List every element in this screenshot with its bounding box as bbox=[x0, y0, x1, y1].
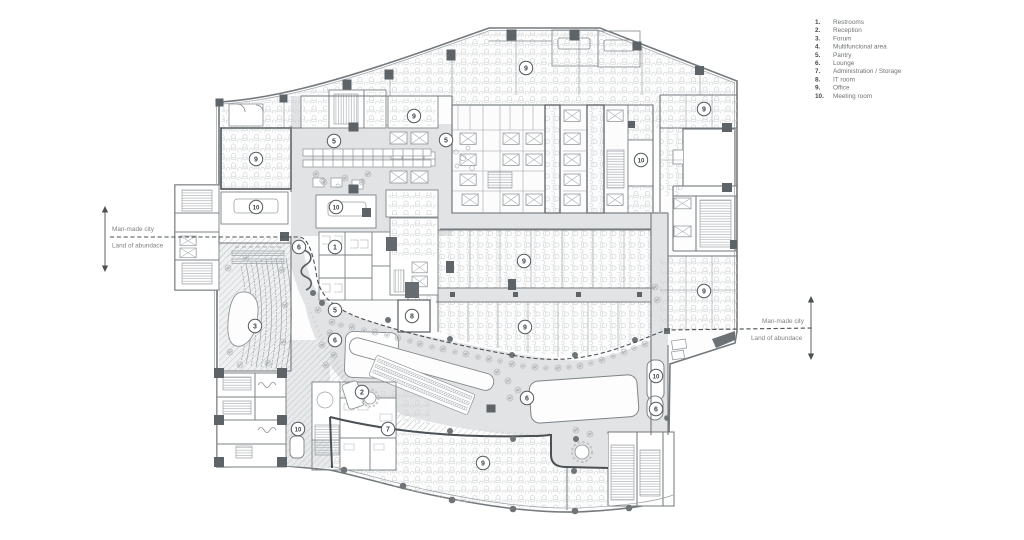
svg-text:10: 10 bbox=[253, 206, 260, 212]
svg-text:Restrooms: Restrooms bbox=[833, 19, 864, 26]
svg-text:3.: 3. bbox=[815, 35, 821, 42]
svg-text:9: 9 bbox=[522, 259, 526, 266]
svg-text:Pantry: Pantry bbox=[833, 52, 852, 59]
svg-text:6: 6 bbox=[525, 396, 529, 403]
svg-text:Office: Office bbox=[833, 85, 850, 92]
svg-text:6.: 6. bbox=[815, 60, 821, 67]
svg-text:10: 10 bbox=[333, 206, 340, 212]
svg-text:10: 10 bbox=[295, 428, 302, 434]
svg-text:10.: 10. bbox=[815, 93, 824, 100]
svg-text:9: 9 bbox=[412, 114, 416, 121]
svg-text:Forum: Forum bbox=[833, 35, 851, 42]
svg-text:Man-made city: Man-made city bbox=[762, 318, 805, 325]
svg-text:3: 3 bbox=[253, 324, 257, 331]
svg-text:5.: 5. bbox=[815, 52, 821, 59]
svg-text:10: 10 bbox=[638, 159, 645, 165]
svg-text:Meeting room: Meeting room bbox=[833, 93, 872, 100]
svg-text:1: 1 bbox=[333, 245, 337, 252]
svg-text:Man-made city: Man-made city bbox=[112, 226, 155, 233]
svg-text:Lounge: Lounge bbox=[833, 60, 855, 67]
svg-text:2: 2 bbox=[360, 390, 364, 397]
svg-text:9: 9 bbox=[523, 325, 527, 332]
svg-text:9: 9 bbox=[481, 461, 485, 468]
svg-text:8: 8 bbox=[410, 314, 414, 321]
svg-text:7: 7 bbox=[386, 427, 390, 434]
svg-text:4.: 4. bbox=[815, 44, 821, 51]
svg-text:9.: 9. bbox=[815, 85, 821, 92]
svg-text:1.: 1. bbox=[815, 19, 821, 26]
svg-text:Land of abundace: Land of abundace bbox=[112, 243, 164, 250]
svg-text:9: 9 bbox=[702, 107, 706, 114]
svg-text:9: 9 bbox=[702, 289, 706, 296]
svg-text:IT room: IT room bbox=[833, 76, 855, 83]
svg-text:7.: 7. bbox=[815, 68, 821, 75]
svg-text:6: 6 bbox=[333, 338, 337, 345]
svg-text:6: 6 bbox=[654, 407, 658, 414]
svg-text:9: 9 bbox=[254, 157, 258, 164]
svg-text:10: 10 bbox=[653, 375, 660, 381]
svg-text:Land of abundace: Land of abundace bbox=[751, 335, 803, 342]
svg-text:9: 9 bbox=[524, 66, 528, 73]
svg-text:Multifuncional area: Multifuncional area bbox=[833, 44, 887, 51]
svg-text:8.: 8. bbox=[815, 76, 821, 83]
svg-text:5: 5 bbox=[333, 308, 337, 315]
svg-text:2.: 2. bbox=[815, 27, 821, 34]
svg-text:Reception: Reception bbox=[833, 27, 862, 34]
svg-text:5: 5 bbox=[332, 139, 336, 146]
svg-text:6: 6 bbox=[297, 245, 301, 252]
svg-text:5: 5 bbox=[444, 138, 448, 145]
svg-text:Administration / Storage: Administration / Storage bbox=[833, 68, 902, 75]
